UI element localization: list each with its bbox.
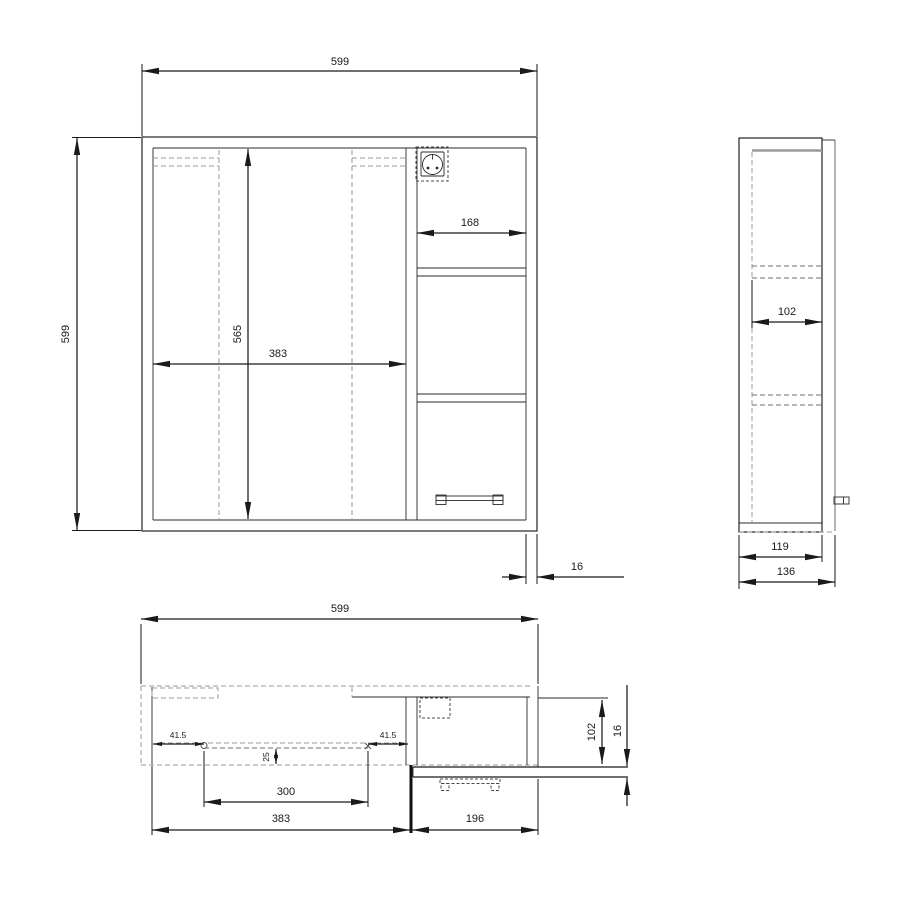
- dim-side-body-depth: 119: [739, 535, 822, 589]
- dim-plan-groove-offset: 25: [261, 749, 276, 764]
- dim-plan-right-offset: 41.5: [368, 730, 408, 744]
- dim-label-side-interior-depth: 102: [778, 306, 796, 318]
- side-view: 102 119 136: [739, 138, 849, 589]
- dim-label-plan-right-offset: 41.5: [380, 730, 397, 740]
- front-outer-outline: [142, 137, 537, 531]
- side-outer-outline: [739, 138, 822, 532]
- drawer-handle-hidden-icon: [440, 779, 500, 791]
- dim-label-front-left-compartment: 383: [269, 348, 287, 360]
- dim-plan-drawer-compartment: 196: [412, 779, 538, 835]
- dim-plan-left-offset: 41.5: [153, 730, 204, 744]
- front-view: 599 599 565 383 168 16: [60, 56, 624, 584]
- dim-label-plan-front-thickness: 16: [612, 725, 624, 737]
- dim-front-right-compartment: 168: [417, 217, 526, 233]
- dim-label-front-overall-width: 599: [331, 56, 349, 68]
- dim-label-front-right-compartment: 168: [461, 217, 479, 229]
- dim-plan-groove-width: 300: [204, 751, 368, 807]
- dim-front-left-compartment: 383: [153, 348, 406, 364]
- dim-label-plan-groove-width: 300: [277, 786, 295, 798]
- hidden-rail-left: [152, 688, 218, 698]
- power-socket-icon: [416, 147, 448, 181]
- dim-label-plan-left-compartment: 383: [272, 813, 290, 825]
- dim-side-interior-depth: 102: [752, 280, 822, 328]
- technical-drawing-canvas: 599 599 565 383 168 16: [0, 0, 900, 900]
- technical-drawing-page: 599 599 565 383 168 16: [0, 0, 900, 900]
- dim-front-overall-height: 599: [60, 138, 141, 531]
- dim-label-side-overall-depth: 136: [777, 566, 795, 578]
- plan-view: 599: [141, 603, 628, 835]
- dim-plan-drawer-depth: 102: [586, 700, 602, 764]
- drawer-handle-side-icon: [834, 497, 849, 504]
- dim-label-side-body-depth: 119: [771, 541, 789, 553]
- drawer-handle-icon: [436, 495, 503, 505]
- dim-label-front-interior-height: 565: [232, 325, 244, 343]
- dim-label-plan-drawer-compartment: 196: [466, 813, 484, 825]
- dim-label-front-overall-height: 599: [60, 325, 72, 343]
- dim-front-overall-width: 599: [142, 56, 537, 136]
- dim-label-plan-drawer-depth: 102: [586, 723, 598, 741]
- dim-label-plan-overall-width: 599: [331, 603, 349, 615]
- dim-plan-left-compartment: 383: [152, 766, 410, 835]
- dim-plan-front-thickness: 16: [612, 685, 627, 806]
- dim-front-interior-height: 565: [232, 149, 248, 519]
- dim-label-plan-groove-offset: 25: [261, 752, 271, 762]
- dim-label-plan-left-offset: 41.5: [170, 730, 187, 740]
- dim-plan-overall-width: 599: [141, 603, 538, 684]
- power-socket-hidden-outline: [420, 698, 450, 718]
- dim-front-panel-thickness: 16: [502, 534, 624, 584]
- dim-label-front-panel-thickness: 16: [571, 561, 583, 573]
